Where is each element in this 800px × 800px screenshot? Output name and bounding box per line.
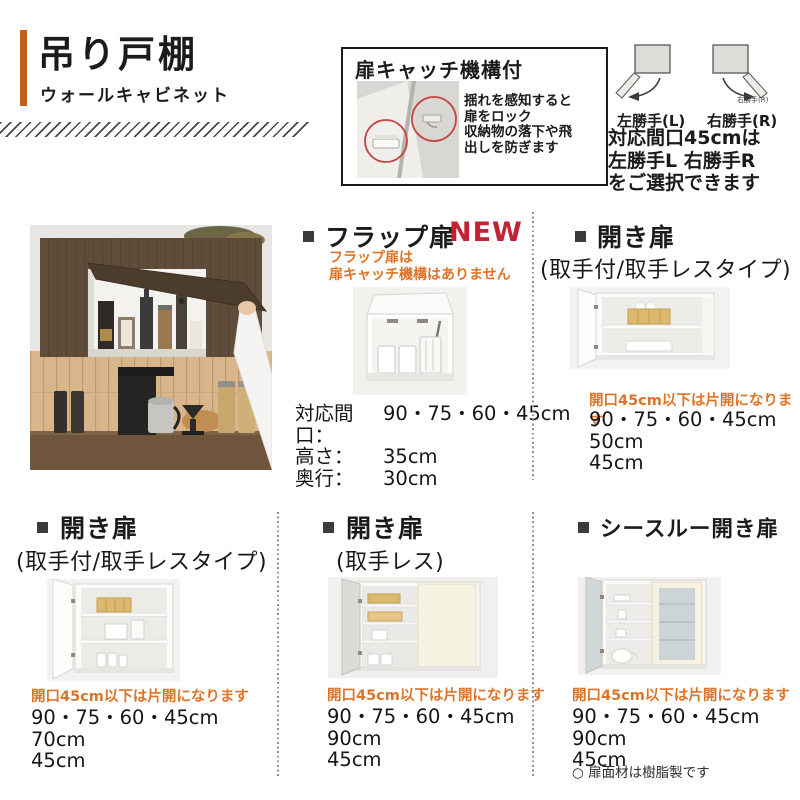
catch-feature-description: 揺れを感知すると 扉をロック 収納物の落下や飛 出しを防ぎます (464, 94, 572, 156)
see-through-title: シースルー開き扉 (600, 512, 779, 543)
hinged-mid-note: 開口45cm以下は片開になります (327, 684, 545, 705)
see-through-note: 開口45cm以下は片開になります (572, 684, 790, 705)
hinged-mid-subtitle: (取手レス) (336, 544, 444, 576)
accent-bar (20, 30, 27, 106)
handing-note: 対応間口45cmは 左勝手L 右勝手R をご選択できます (608, 127, 761, 195)
spec-row: 対応間口： 90・75・60・45cm (295, 403, 570, 446)
spec-value: 45cm (31, 750, 218, 772)
hinged-left-specs: 90・75・60・45cm 70cm 45cm (31, 707, 218, 772)
catch-feature-title: 扉キャッチ機構付 (355, 54, 523, 83)
right-hand-small-label: 右勝手(R) (737, 95, 768, 105)
spec-row: 奥行： 30cm (295, 468, 570, 490)
hinged-top-specs: 90・75・60・45cm 50cm 45cm (589, 409, 776, 474)
catch-desc-line: 揺れを感知すると (464, 94, 572, 110)
flap-warning-line: 扉キャッチ機構はありません (329, 267, 511, 284)
flap-cabinet-image (353, 287, 467, 395)
spec-value: 90・75・60・45cm (383, 403, 570, 446)
flap-section-title: フラップ扉 (325, 218, 455, 254)
spec-value: 70cm (31, 729, 218, 751)
spec-label: 対応間口： (295, 403, 383, 446)
section-bullet (575, 231, 586, 242)
left-hand-door-diagram (605, 42, 700, 102)
section-bullet (578, 522, 589, 533)
flap-warning-line: フラップ扉は (329, 250, 511, 267)
spec-value: 90cm (572, 728, 759, 750)
hinged-left-cabinet-image (47, 579, 180, 681)
section-bullet (303, 231, 314, 242)
section-bullet (323, 522, 334, 533)
spec-value: 90・75・60・45cm (31, 707, 218, 729)
spec-value: 30cm (383, 468, 438, 490)
spec-value: 90・75・60・45cm (327, 706, 514, 728)
dotted-divider (532, 212, 534, 480)
see-through-cabinet-image (578, 577, 721, 675)
hinged-left-subtitle: (取手付/取手レスタイプ) (16, 544, 267, 576)
handing-note-line: をご選択できます (608, 172, 761, 195)
spec-label: 奥行： (295, 468, 383, 490)
hinged-mid-title: 開き扉 (346, 509, 424, 545)
flap-specs: 対応間口： 90・75・60・45cm 高さ： 35cm 奥行： 30cm (295, 403, 570, 489)
spec-value: 45cm (589, 452, 776, 474)
spec-value: 45cm (327, 749, 514, 771)
handing-note-line: 対応間口45cmは (608, 127, 761, 150)
hinged-top-subtitle: (取手付/取手レスタイプ) (540, 252, 791, 284)
catch-desc-line: 出しを防ぎます (464, 141, 572, 157)
page-title: 吊り戸棚 (38, 24, 198, 78)
catch-mechanism-image (357, 81, 459, 178)
brochure-page: 吊り戸棚 ウォールキャビネット 扉キャッチ機構付 揺れを感知すると 扉をロック … (0, 0, 800, 800)
kitchen-photo (30, 225, 272, 470)
section-bullet (37, 522, 48, 533)
spec-value: 90・75・60・45cm (572, 706, 759, 728)
right-hand-door-diagram (688, 42, 783, 102)
hinged-left-note: 開口45cm以下は片開になります (31, 685, 249, 706)
hinged-mid-specs: 90・75・60・45cm 90cm 45cm (327, 706, 514, 771)
spec-value: 90cm (327, 728, 514, 750)
diagonal-hatch-strip (0, 122, 314, 137)
new-badge: NEW (449, 217, 523, 248)
spec-value: 90・75・60・45cm (589, 409, 776, 431)
spec-value: 50cm (589, 431, 776, 453)
dotted-divider (532, 512, 534, 778)
dotted-divider (277, 512, 279, 778)
spec-label: 高さ： (295, 446, 383, 468)
spec-row: 高さ： 35cm (295, 446, 570, 468)
flap-warning: フラップ扉は 扉キャッチ機構はありません (329, 250, 511, 284)
catch-desc-line: 収納物の落下や飛 (464, 125, 572, 141)
hinged-top-title: 開き扉 (597, 218, 675, 254)
see-through-footnote: ○ 扉面材は樹脂製です (572, 761, 710, 781)
hinged-left-title: 開き扉 (60, 509, 138, 545)
catch-desc-line: 扉をロック (464, 110, 572, 126)
hinged-mid-cabinet-image (328, 577, 498, 678)
page-subtitle: ウォールキャビネット (40, 81, 230, 106)
handing-note-line: 左勝手L 右勝手R (608, 150, 761, 173)
spec-value: 35cm (383, 446, 438, 468)
hinged-top-cabinet-image (570, 287, 730, 369)
